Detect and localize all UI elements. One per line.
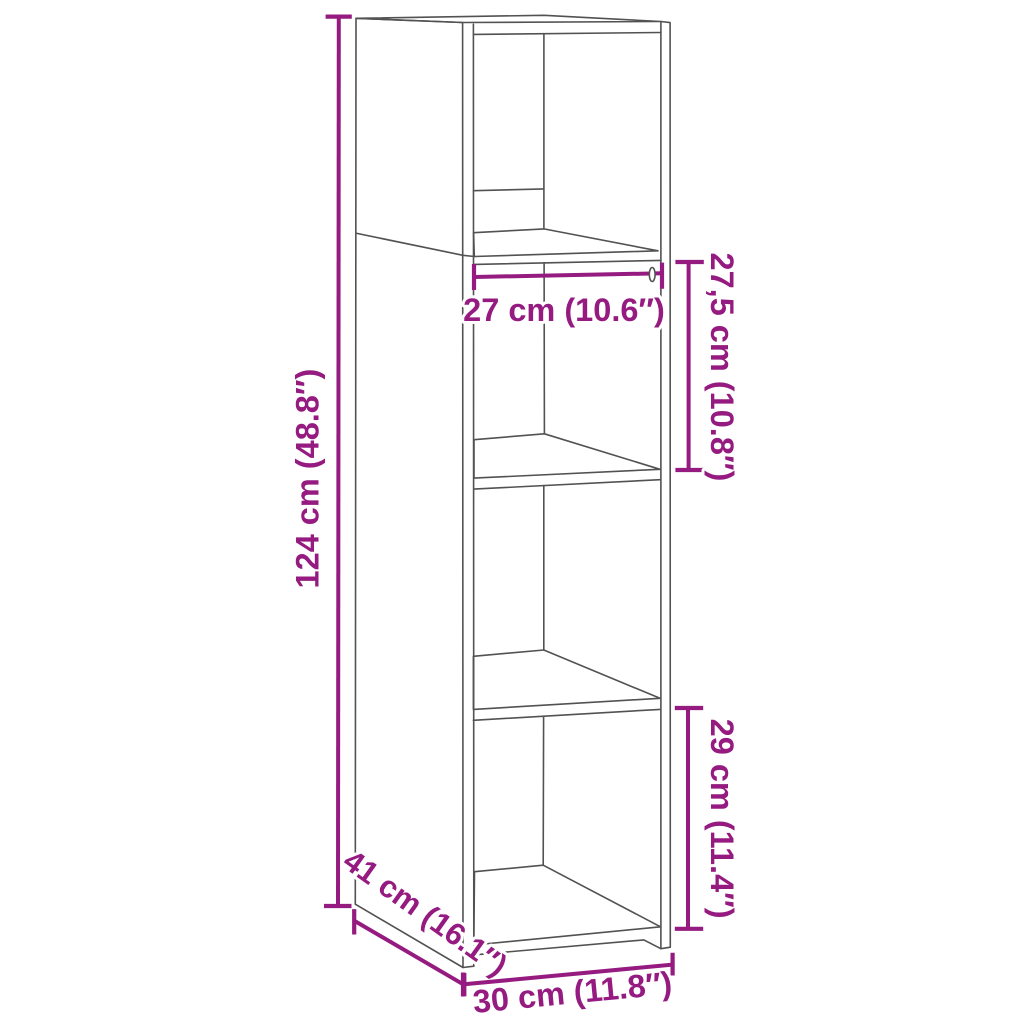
svg-text:27,5 cm (10.8″): 27,5 cm (10.8″)	[704, 253, 740, 482]
svg-text:124 cm (48.8″): 124 cm (48.8″)	[290, 369, 326, 589]
svg-text:29 cm (11.4″): 29 cm (11.4″)	[704, 719, 740, 919]
svg-text:27 cm (10.6″): 27 cm (10.6″)	[463, 292, 665, 328]
